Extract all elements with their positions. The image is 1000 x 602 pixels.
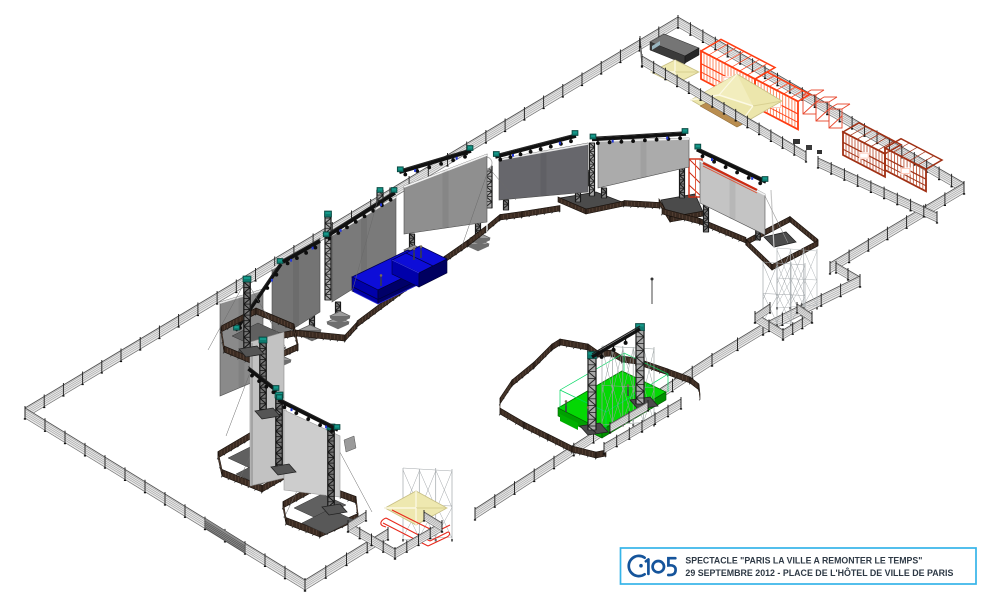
svg-text:29 SEPTEMBRE 2012 - PLACE DE L: 29 SEPTEMBRE 2012 - PLACE DE L'HÔTEL DE … — [685, 567, 953, 578]
svg-text:SPECTACLE "PARIS LA VILLE A RE: SPECTACLE "PARIS LA VILLE A REMONTER LE … — [685, 555, 922, 565]
